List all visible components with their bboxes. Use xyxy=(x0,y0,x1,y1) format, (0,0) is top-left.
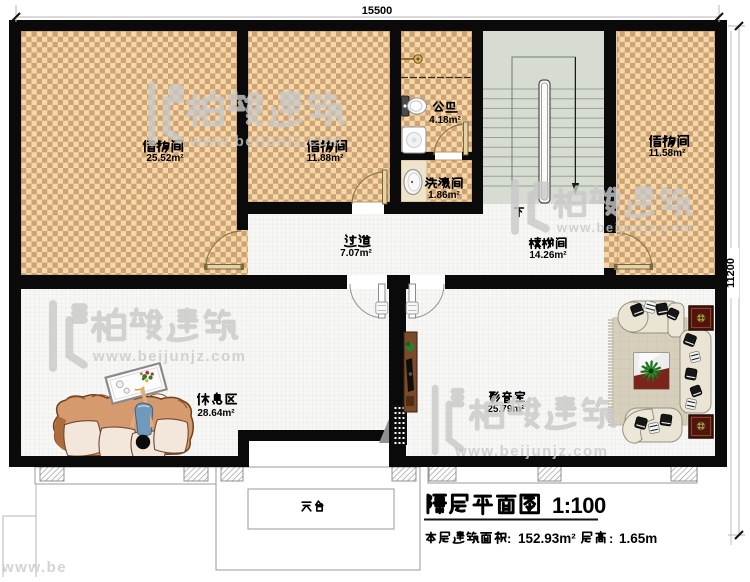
svg-text:7.07m²: 7.07m² xyxy=(340,248,372,259)
svg-text:11.58m²: 11.58m² xyxy=(649,148,686,159)
svg-text:1:100: 1:100 xyxy=(552,493,606,518)
svg-text:25.52m²: 25.52m² xyxy=(146,153,184,164)
svg-text:15500: 15500 xyxy=(362,5,393,17)
svg-text:11.88m²: 11.88m² xyxy=(307,153,344,164)
svg-text:152.93m²: 152.93m² xyxy=(518,531,576,546)
svg-text:www.beijunjz.com: www.beijunjz.com xyxy=(556,220,693,235)
svg-text:1.65m: 1.65m xyxy=(619,531,657,546)
svg-text:www.beijunjz.com: www.beijunjz.com xyxy=(454,443,608,460)
svg-text:www.beijunjz.com: www.beijunjz.com xyxy=(92,348,246,365)
svg-text::: : xyxy=(507,531,511,546)
svg-text:11200: 11200 xyxy=(725,258,737,288)
svg-text:www.be: www.be xyxy=(1,559,67,576)
svg-text:28.64m²: 28.64m² xyxy=(197,408,235,419)
svg-text:1.86m²: 1.86m² xyxy=(428,190,460,201)
svg-text:4.18m²: 4.18m² xyxy=(429,115,461,126)
svg-text:www.beijunjz.com: www.beijunjz.com xyxy=(189,133,343,150)
svg-text::: : xyxy=(609,531,613,546)
svg-text:14.26m²: 14.26m² xyxy=(529,250,567,261)
